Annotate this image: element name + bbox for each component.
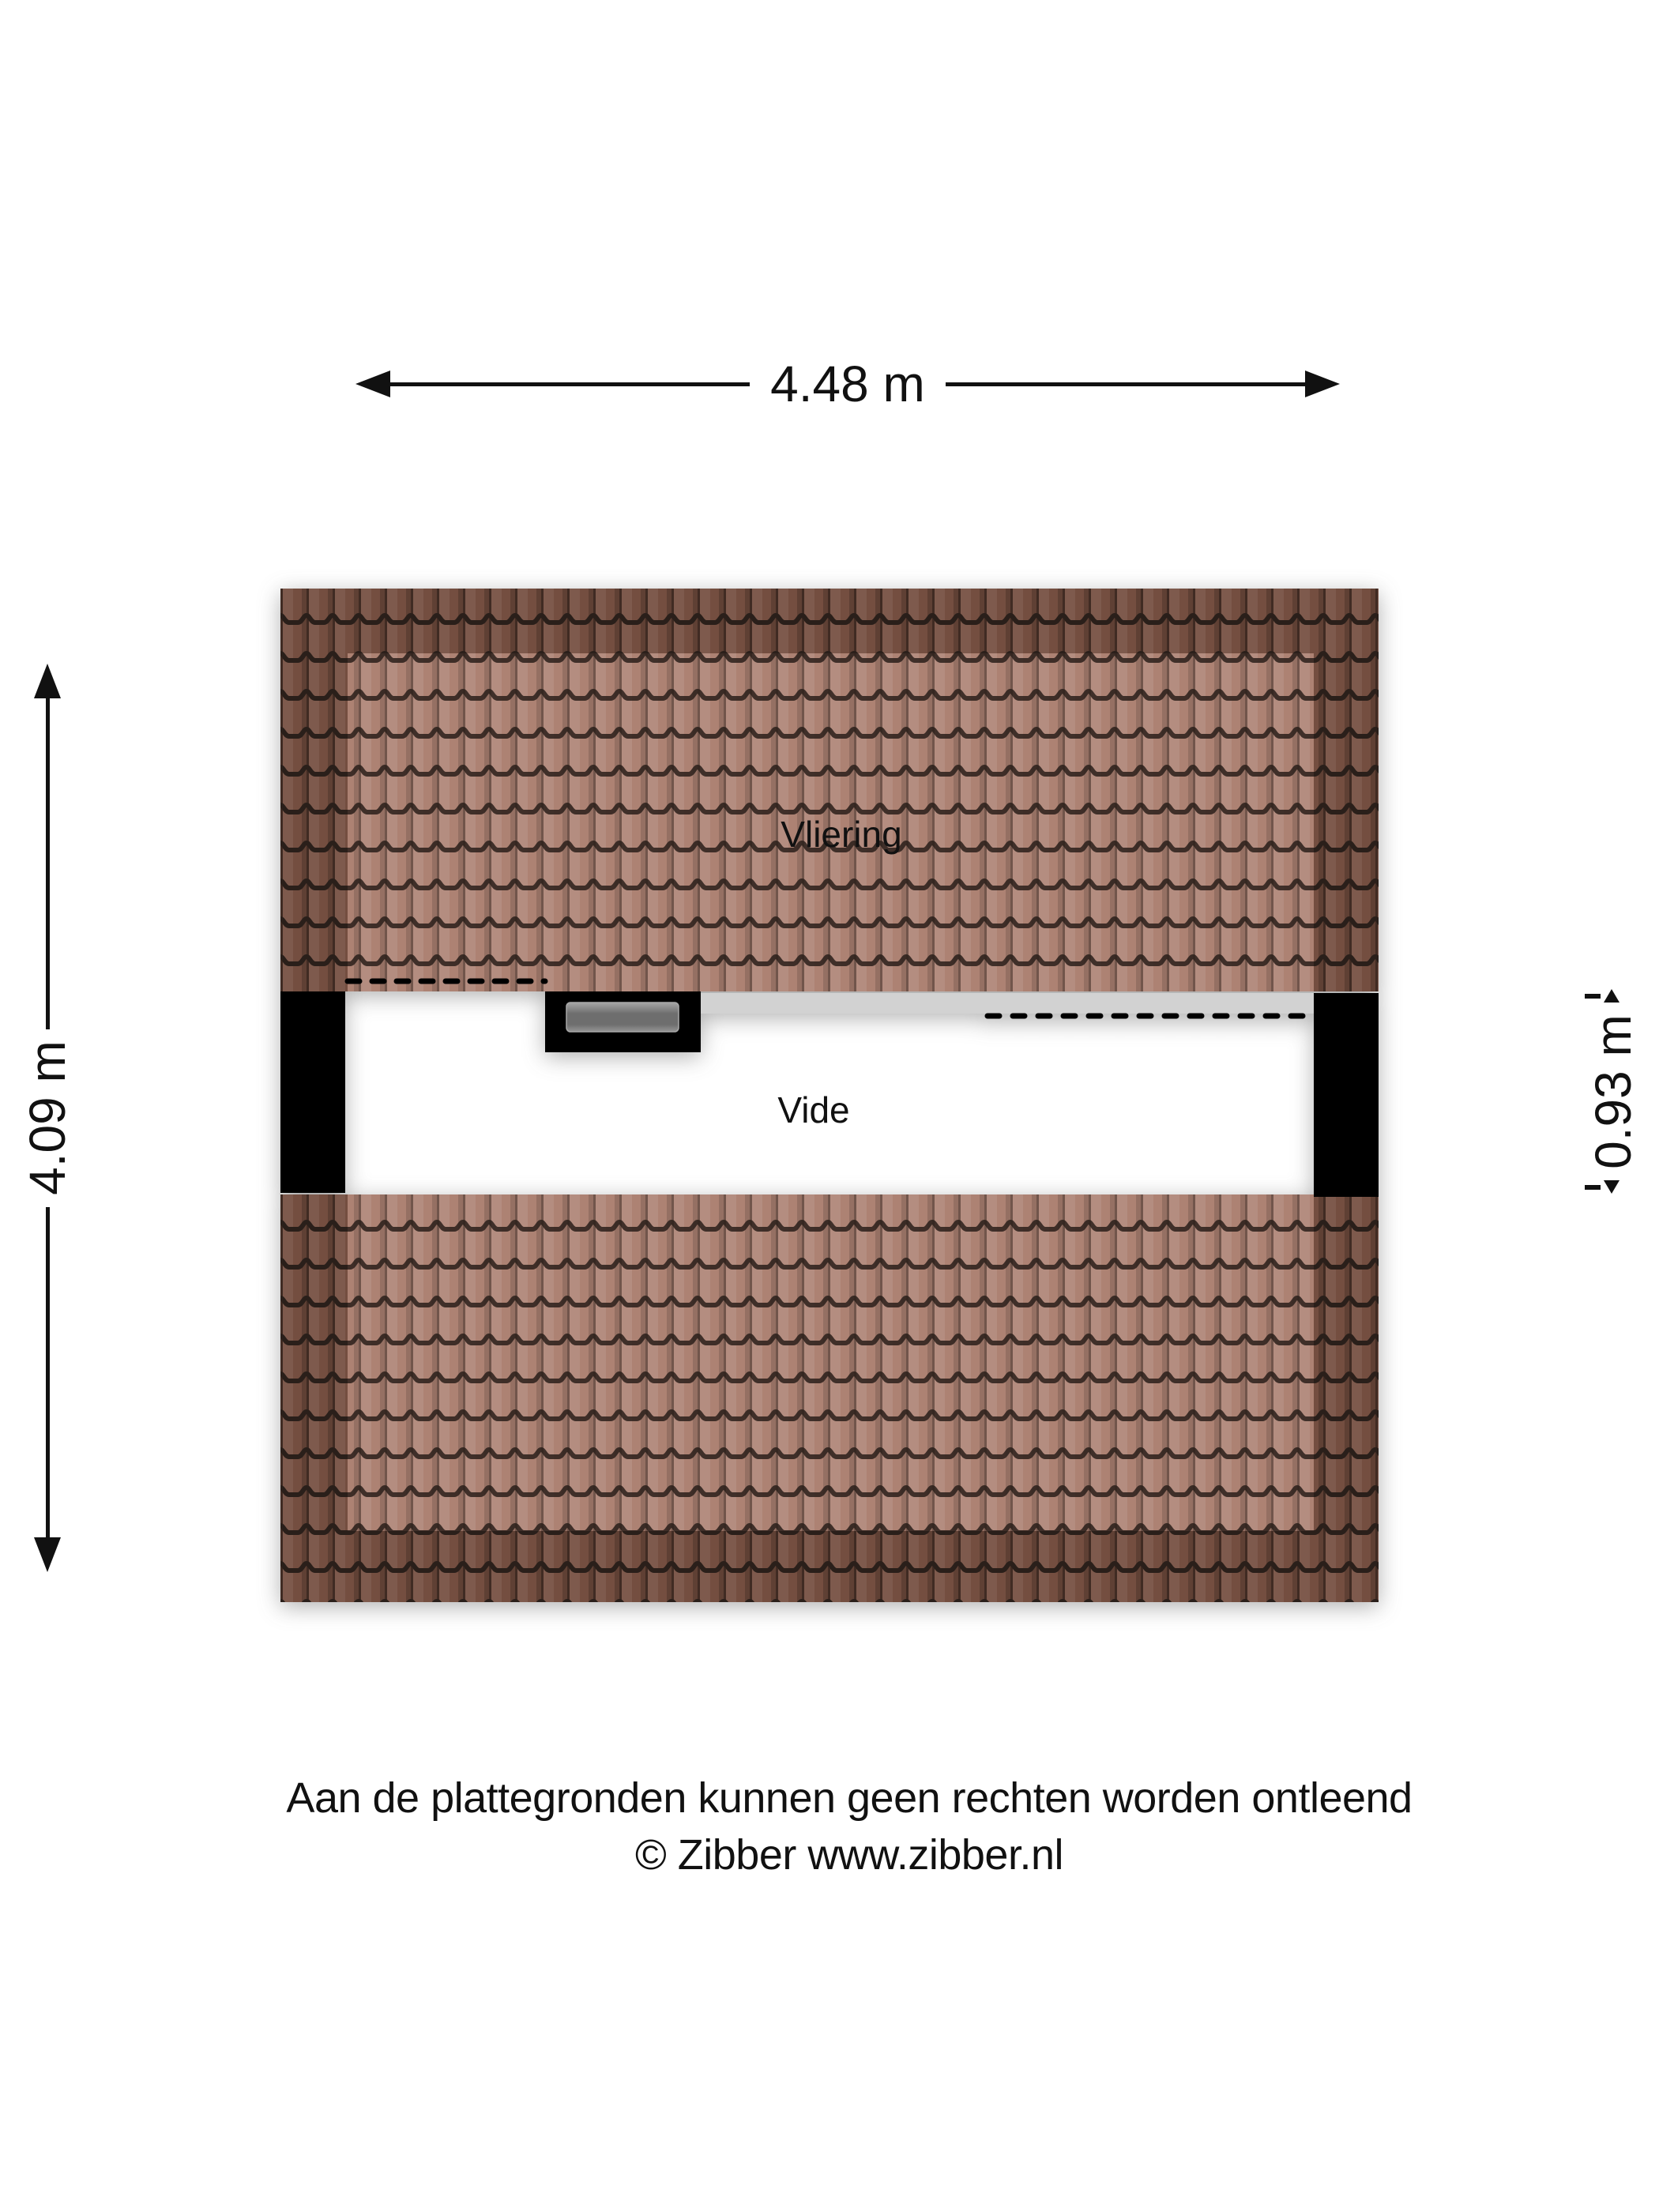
dormer-window-glass	[566, 1003, 679, 1032]
footer: Aan de plattegronden kunnen geen rechten…	[0, 1770, 1659, 1883]
roof-overhang-strip	[701, 993, 1314, 1014]
arrowhead-down-icon	[1604, 1180, 1619, 1194]
arrowhead-up-icon	[34, 664, 61, 698]
roof-section-top	[280, 589, 1379, 991]
arrowhead-down-icon	[34, 1537, 61, 1572]
arrowhead-left-icon	[355, 371, 390, 397]
floorplan-page: 4.48 m 4.09 m 0.93 m	[0, 0, 1659, 2212]
roof-bottom-interior-tiles	[348, 1194, 1314, 1531]
dimension-void-label: 0.93 m	[1588, 1014, 1638, 1169]
dimension-line	[46, 698, 50, 1029]
dimension-void-top	[1585, 989, 1619, 1003]
dimension-tick	[1585, 994, 1601, 999]
footer-copyright: © Zibber www.zibber.nl	[39, 1826, 1659, 1883]
dimension-width: 4.48 m	[355, 359, 1340, 408]
room-label-vide: Vide	[777, 1092, 849, 1128]
footer-disclaimer: Aan de plattegronden kunnen geen rechten…	[39, 1770, 1659, 1826]
dimension-void-bottom	[1585, 1180, 1619, 1194]
dimension-line	[946, 382, 1305, 386]
dimension-height-label-box: 4.09 m	[21, 1029, 73, 1207]
wall-right	[1314, 993, 1379, 1197]
wall-left	[280, 991, 345, 1193]
arrowhead-up-icon	[1604, 989, 1619, 1003]
dimension-height-label: 4.09 m	[22, 1040, 73, 1195]
dimension-line	[390, 382, 750, 386]
dimension-height: 4.09 m	[21, 664, 73, 1572]
dimension-line	[46, 1207, 50, 1538]
room-label-vliering: Vliering	[781, 816, 901, 852]
dormer-window	[545, 991, 701, 1052]
dimension-width-label: 4.48 m	[750, 359, 946, 409]
dimension-tick	[1585, 1185, 1601, 1190]
roof-section-bottom	[280, 1194, 1379, 1602]
arrowhead-right-icon	[1305, 371, 1340, 397]
